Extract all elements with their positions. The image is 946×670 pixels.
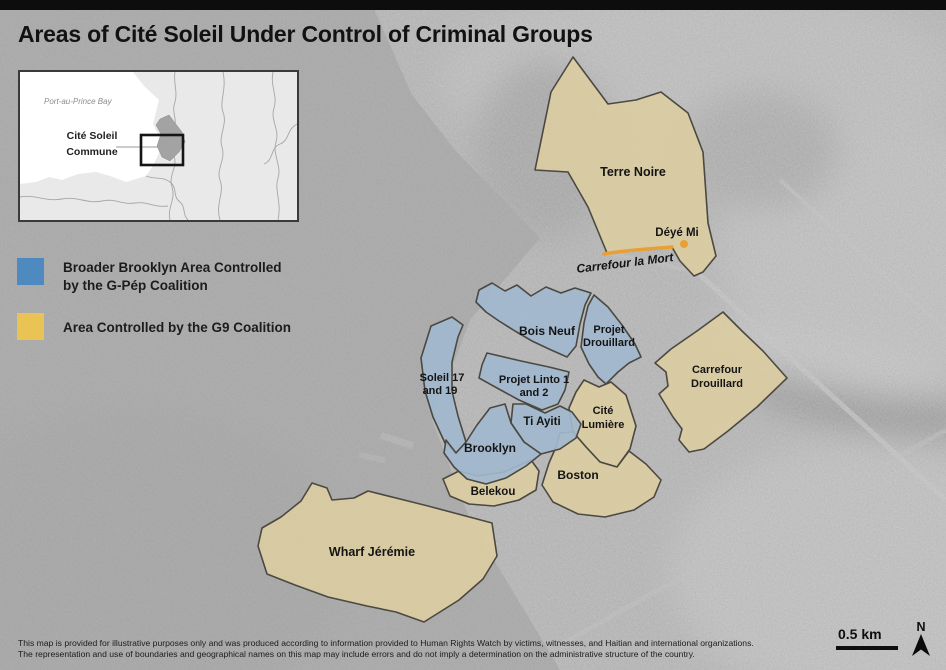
north-arrow: N bbox=[906, 620, 936, 663]
label-projet-drouillard-1: Projet bbox=[593, 324, 625, 336]
label-cite-lumiere-1: Cité bbox=[593, 405, 614, 417]
label-ti-ayiti: Ti Ayiti bbox=[523, 416, 560, 428]
label-projet-drouillard-2: Drouillard bbox=[583, 337, 635, 349]
scale-bar-line bbox=[836, 646, 898, 650]
disclaimer-line2: The representation and use of boundaries… bbox=[18, 649, 798, 660]
legend-gpep-line1: Broader Brooklyn Area Controlled bbox=[63, 259, 282, 277]
label-brooklyn: Brooklyn bbox=[464, 441, 516, 455]
disclaimer: This map is provided for illustrative pu… bbox=[18, 638, 798, 660]
scale-bar: 0.5 km bbox=[836, 626, 900, 650]
label-linto-1: Projet Linto 1 bbox=[499, 374, 569, 386]
label-carrefour-drouillard-1: Carrefour bbox=[692, 364, 743, 376]
label-bois-neuf: Bois Neuf bbox=[519, 324, 576, 338]
page-title: Areas of Cité Soleil Under Control of Cr… bbox=[18, 21, 778, 48]
legend-label-g9: Area Controlled by the G9 Coalition bbox=[63, 313, 291, 337]
label-terre-noire: Terre Noire bbox=[600, 165, 666, 179]
north-arrow-icon bbox=[909, 634, 933, 658]
g9-color-swatch bbox=[17, 313, 44, 340]
disclaimer-line1: This map is provided for illustrative pu… bbox=[18, 638, 798, 649]
top-bar bbox=[0, 0, 946, 10]
label-cite-lumiere-2: Lumière bbox=[582, 419, 625, 431]
inset-commune-label-2: Commune bbox=[66, 146, 117, 158]
gpep-color-swatch bbox=[17, 258, 44, 285]
label-wharf-jeremie: Wharf Jérémie bbox=[329, 545, 415, 559]
label-belekou: Belekou bbox=[471, 486, 516, 498]
map-screenshot: Terre Noire Déyé Mi Carrefour la Mort Bo… bbox=[0, 0, 946, 670]
label-linto-2: and 2 bbox=[520, 387, 549, 399]
inset-commune-label-1: Cité Soleil bbox=[67, 130, 118, 142]
label-soleil-2: and 19 bbox=[423, 385, 458, 397]
label-soleil-1: Soleil 17 bbox=[420, 372, 465, 384]
label-carrefour-drouillard-2: Drouillard bbox=[691, 378, 743, 390]
legend-item-g9: Area Controlled by the G9 Coalition bbox=[17, 313, 347, 340]
legend-item-gpep: Broader Brooklyn Area Controlled by the … bbox=[17, 258, 347, 295]
locator-inset: Port-au-Prince Bay Cité Soleil Commune bbox=[18, 70, 299, 222]
label-boston: Boston bbox=[557, 468, 598, 482]
north-label: N bbox=[906, 620, 936, 634]
label-deye-mi: Déyé Mi bbox=[655, 227, 698, 239]
scale-label: 0.5 km bbox=[838, 626, 900, 642]
legend-label-gpep: Broader Brooklyn Area Controlled by the … bbox=[63, 258, 282, 295]
legend: Broader Brooklyn Area Controlled by the … bbox=[17, 258, 347, 358]
legend-g9-line1: Area Controlled by the G9 Coalition bbox=[63, 319, 291, 337]
legend-gpep-line2: by the G-Pép Coalition bbox=[63, 277, 282, 295]
inset-svg: Port-au-Prince Bay Cité Soleil Commune bbox=[20, 72, 297, 220]
inset-bay-label: Port-au-Prince Bay bbox=[44, 97, 113, 106]
